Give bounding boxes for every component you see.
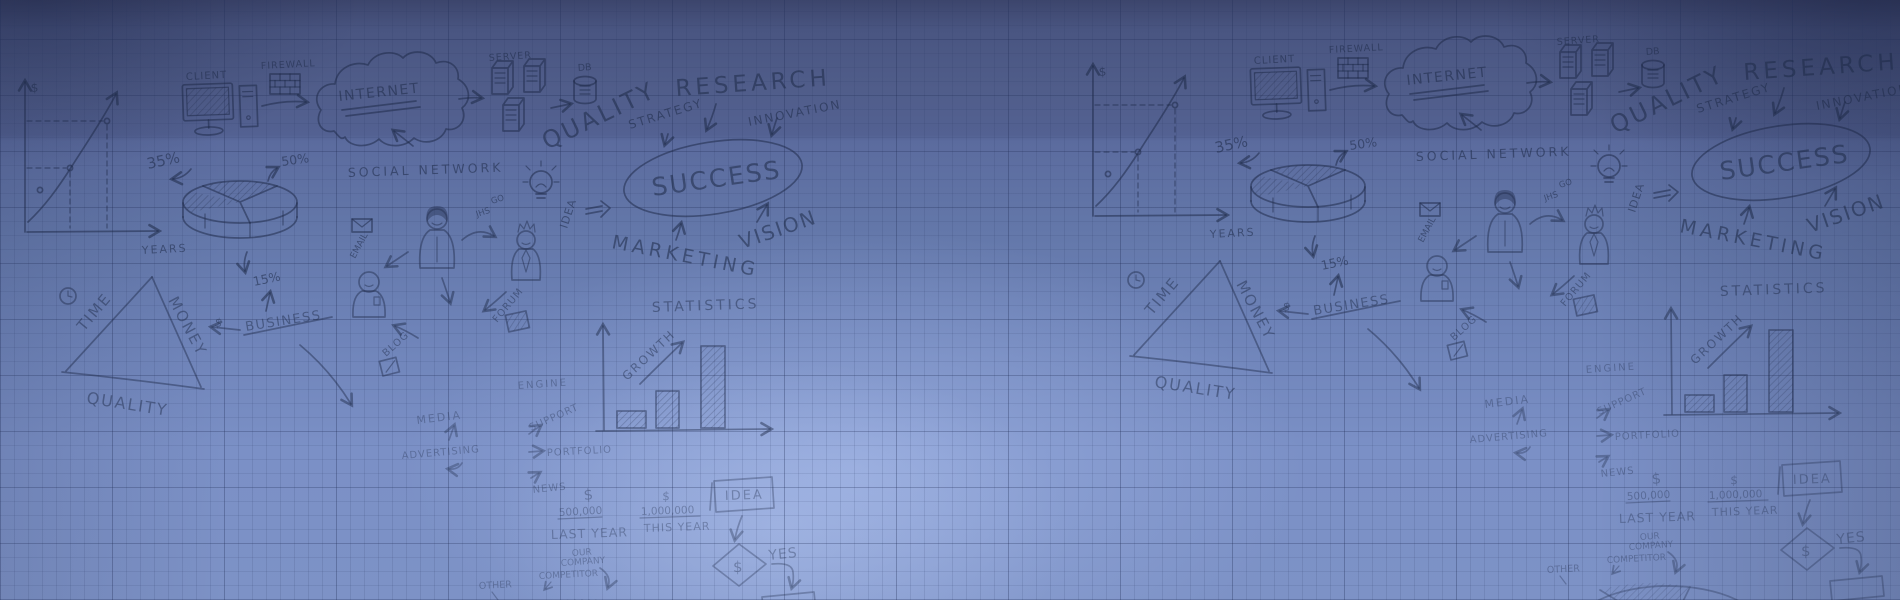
- innovation-label: INNOVATION: [747, 97, 843, 129]
- our-company-arrow: [600, 568, 609, 587]
- engine-label: ENGINE: [517, 378, 568, 392]
- email-icon: [352, 219, 372, 232]
- statistics-label: STATISTICS: [652, 296, 760, 316]
- db-cylinder-doodle: [574, 77, 596, 104]
- db-label: DB: [577, 62, 592, 74]
- this-year-label: THIS YEAR: [643, 520, 711, 535]
- company-label: COMPANY: [561, 556, 606, 569]
- blog-icon: [379, 357, 399, 376]
- jhs-label: JHS: [474, 206, 492, 220]
- social-network-label: SOCIAL NETWORK: [348, 160, 504, 180]
- forum-icon: [505, 311, 529, 332]
- idea-fat-arrow: [586, 201, 610, 217]
- idea-vertical-label: IDEA: [557, 197, 579, 230]
- client-label: CLIENT: [186, 70, 228, 83]
- percent-50-label: 50%: [280, 150, 310, 169]
- portfolio-arrow: [529, 451, 542, 452]
- doodle-tile-repeat: [1093, 34, 1900, 600]
- pie-down-arrow: [244, 252, 247, 271]
- server-label: SERVER: [488, 50, 532, 64]
- advertising-hook-arrow: [449, 463, 462, 469]
- email-label: EMAIL: [349, 232, 371, 261]
- competitor-arrow: [545, 582, 551, 589]
- media-label: MEDIA: [416, 409, 463, 427]
- firewall-icon: [270, 74, 300, 94]
- axis-dollar-label: $: [30, 80, 39, 94]
- news-label: NEWS: [532, 481, 567, 495]
- dollar-this-year: $: [662, 489, 670, 503]
- client-computer-doodle: [182, 82, 258, 136]
- flow-dollar-label: $: [733, 558, 743, 576]
- line-chart-doodle: [25, 82, 158, 232]
- research-down-arrow: [707, 104, 716, 129]
- axis-years-label: YEARS: [140, 242, 187, 257]
- go-label: GO: [490, 193, 506, 207]
- firewall-label: FIREWALL: [261, 58, 316, 72]
- idea-box-label: IDEA: [725, 488, 764, 504]
- dollar-last-year: $: [583, 485, 594, 504]
- business-arrows: [212, 317, 351, 404]
- percent-35-label: 35%: [145, 148, 181, 173]
- percent-15-label: 15%: [252, 268, 282, 288]
- triangle-time-label: TIME: [73, 289, 116, 335]
- lightbulb-icon: [523, 161, 559, 198]
- percent-15-arrow: [266, 293, 270, 311]
- client-to-cloud-arrow: [262, 102, 306, 107]
- last-year-label: LAST YEAR: [551, 524, 629, 542]
- doodle-tile: $ YEARS 35% 50% 15%: [25, 50, 843, 600]
- strategy-down-arrow: [665, 134, 668, 144]
- pie-chart-doodle: [183, 181, 297, 238]
- other-label: OTHER: [479, 579, 513, 592]
- percent-50-arrow: [268, 168, 277, 181]
- bar-chart-doodle: [596, 326, 770, 431]
- triangle-money-label: MONEY: [164, 293, 210, 358]
- advertising-label: ADVERTISING: [401, 444, 480, 462]
- bottom-pie-doodle: [492, 592, 816, 600]
- media-up-arrow: [449, 426, 454, 440]
- vision-label: VISION: [736, 205, 820, 254]
- hero-banner-background: $ YEARS 35% 50% 15%: [0, 0, 1900, 600]
- competitor-label: COMPETITOR: [539, 569, 599, 582]
- vision-up-arrow: [757, 205, 767, 222]
- success-label: SUCCESS: [650, 155, 783, 202]
- triangle-quality-label: QUALITY: [85, 388, 169, 420]
- portfolio-label: PORTFOLIO: [547, 445, 613, 459]
- yes-label: YES: [767, 545, 799, 564]
- blog-label: BLOG: [381, 330, 412, 359]
- doodle-layer: $ YEARS 35% 50% 15%: [0, 0, 1900, 600]
- news-arrow: [531, 473, 539, 478]
- percent-35-arrow: [173, 169, 191, 179]
